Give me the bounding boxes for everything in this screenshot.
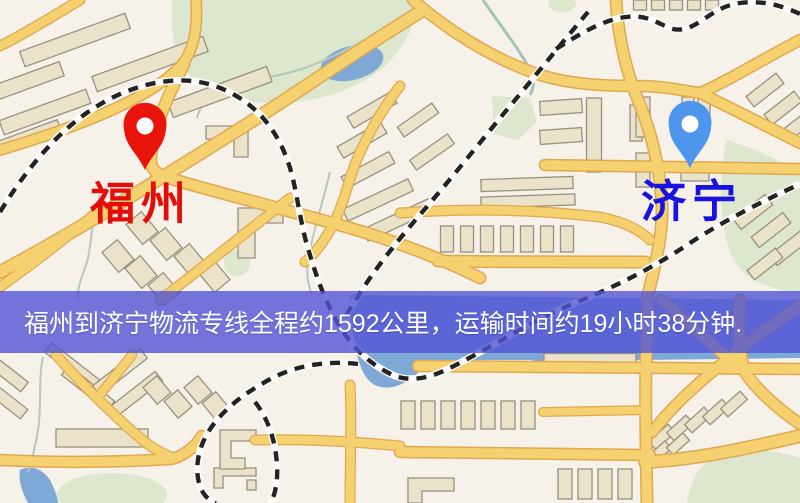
building [598, 469, 612, 499]
building [481, 226, 494, 252]
building [461, 226, 474, 252]
building [441, 401, 455, 429]
building [501, 401, 515, 429]
route-info-text: 福州到济宁物流专线全程约1592公里，运输时间约19小时38分钟. [0, 304, 742, 340]
map-screenshot: 福州 济宁 福州到济宁物流专线全程约1592公里，运输时间约19小时38分钟. [0, 0, 800, 503]
building [481, 176, 573, 191]
building [540, 99, 583, 116]
destination-pin-hole [682, 116, 699, 133]
building [481, 401, 495, 429]
building [618, 469, 632, 499]
building [441, 226, 454, 252]
building [401, 401, 415, 429]
origin-pin-hole [137, 118, 154, 135]
building [688, 0, 701, 10]
building [652, 0, 665, 10]
destination-label: 济宁 [641, 177, 743, 227]
map-canvas: 福州 济宁 [0, 0, 800, 503]
building [634, 0, 647, 10]
building [421, 401, 435, 429]
building [521, 226, 534, 252]
building [540, 128, 583, 145]
building [578, 469, 592, 499]
building [670, 0, 683, 10]
building [461, 401, 475, 429]
route-info-banner: 福州到济宁物流专线全程约1592公里，运输时间约19小时38分钟. [0, 291, 800, 353]
building [541, 226, 554, 252]
building [561, 226, 574, 252]
origin-label: 福州 [89, 179, 192, 229]
building [501, 226, 514, 252]
building [558, 469, 572, 499]
building [521, 401, 535, 429]
